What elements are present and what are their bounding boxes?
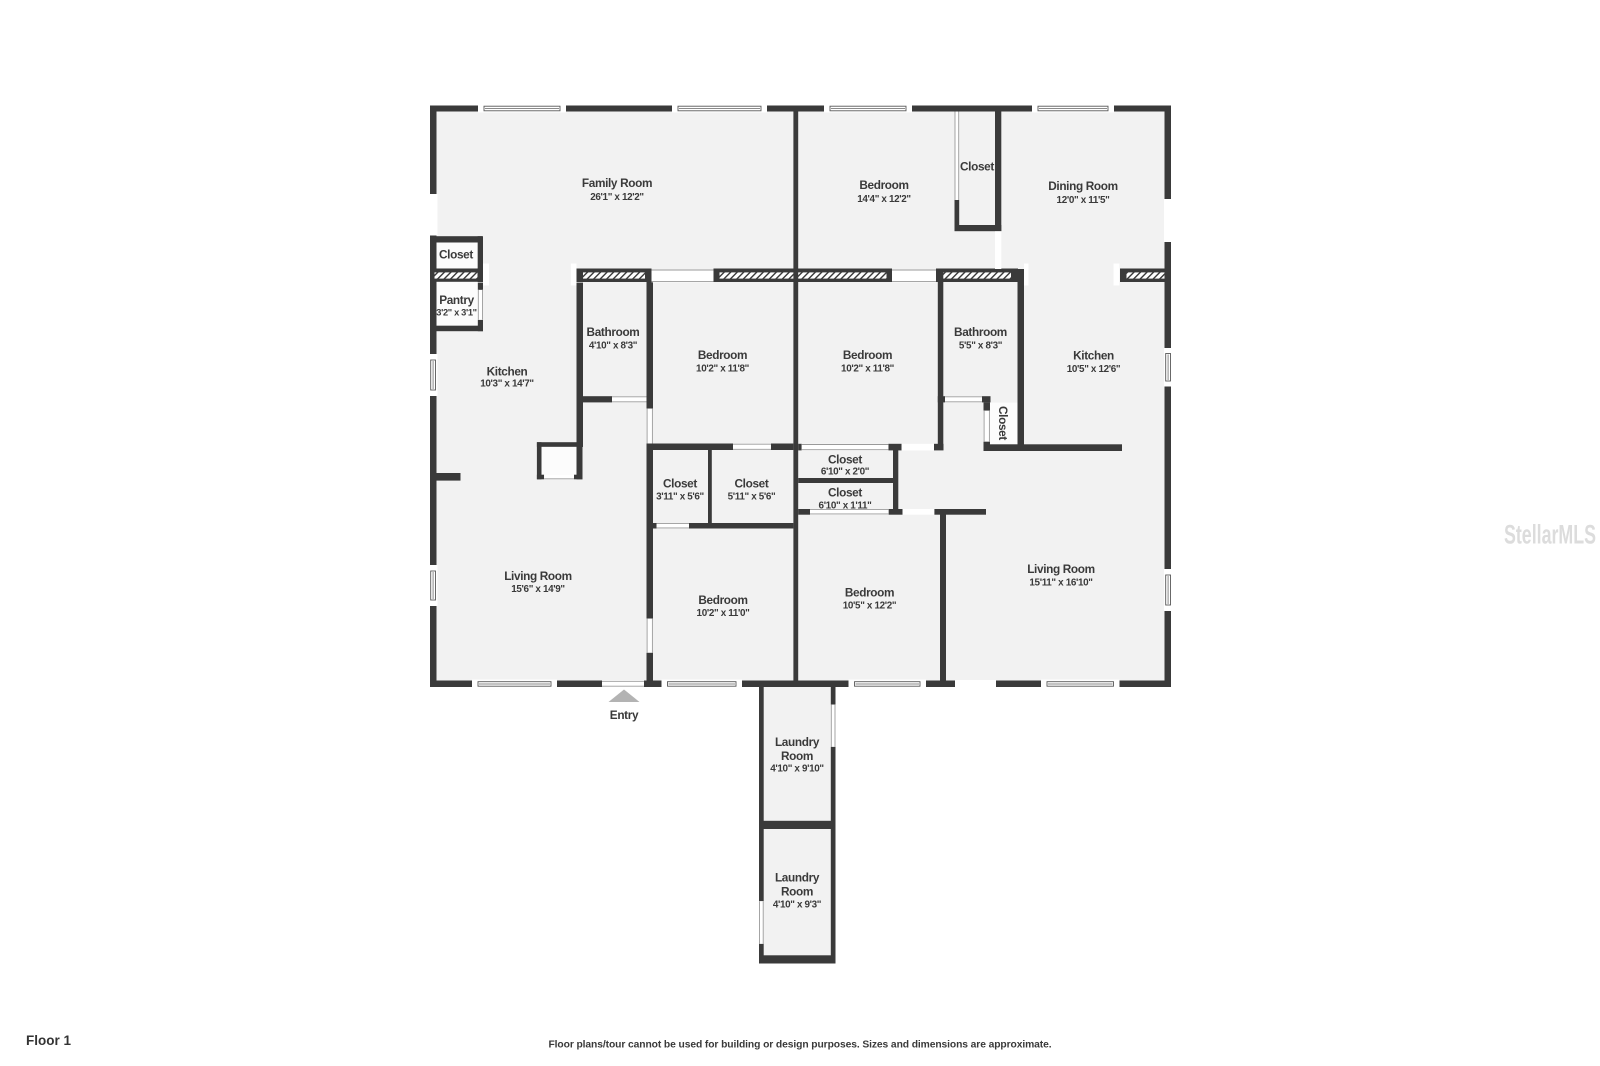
svg-text:StellarMLS: StellarMLS bbox=[1504, 520, 1596, 550]
svg-text:Living Room: Living Room bbox=[504, 569, 572, 583]
svg-text:Kitchen: Kitchen bbox=[487, 365, 528, 379]
svg-text:15'6" x 14'9": 15'6" x 14'9" bbox=[511, 584, 565, 595]
svg-text:6'10" x 1'11": 6'10" x 1'11" bbox=[819, 501, 873, 512]
svg-text:Living Room: Living Room bbox=[1027, 562, 1095, 576]
svg-text:26'1" x 12'2": 26'1" x 12'2" bbox=[590, 192, 644, 203]
svg-text:14'4" x 12'2": 14'4" x 12'2" bbox=[857, 194, 911, 205]
svg-text:Room: Room bbox=[781, 749, 813, 763]
svg-text:Kitchen: Kitchen bbox=[1073, 349, 1114, 363]
svg-text:Closet: Closet bbox=[663, 477, 697, 491]
svg-text:Closet: Closet bbox=[996, 406, 1010, 440]
svg-text:Family Room: Family Room bbox=[582, 176, 652, 190]
svg-text:10'2" x 11'0": 10'2" x 11'0" bbox=[697, 608, 751, 619]
svg-text:Pantry: Pantry bbox=[439, 293, 474, 307]
svg-text:5'11" x 5'6": 5'11" x 5'6" bbox=[728, 492, 776, 503]
svg-text:12'0" x 11'5": 12'0" x 11'5" bbox=[1057, 195, 1111, 206]
svg-text:Closet: Closet bbox=[439, 248, 473, 262]
svg-text:Dining Room: Dining Room bbox=[1048, 179, 1118, 193]
svg-text:Bathroom: Bathroom bbox=[587, 325, 640, 339]
svg-text:Laundry: Laundry bbox=[775, 735, 820, 749]
svg-text:Closet: Closet bbox=[735, 477, 769, 491]
svg-text:4'10" x 8'3": 4'10" x 8'3" bbox=[589, 341, 638, 352]
svg-text:10'5" x 12'6": 10'5" x 12'6" bbox=[1067, 364, 1121, 375]
svg-text:Closet: Closet bbox=[828, 486, 862, 500]
svg-text:Floor plans/tour cannot be use: Floor plans/tour cannot be used for buil… bbox=[548, 1040, 1051, 1051]
svg-text:Closet: Closet bbox=[828, 453, 862, 467]
svg-text:Laundry: Laundry bbox=[775, 871, 820, 885]
svg-text:4'10" x 9'10": 4'10" x 9'10" bbox=[770, 764, 824, 775]
svg-text:5'5" x 8'3": 5'5" x 8'3" bbox=[959, 341, 1003, 352]
svg-text:Bedroom: Bedroom bbox=[845, 586, 894, 600]
svg-text:10'3" x 14'7": 10'3" x 14'7" bbox=[480, 379, 534, 390]
svg-text:4'10" x 9'3": 4'10" x 9'3" bbox=[773, 900, 822, 911]
svg-text:10'2" x 11'8": 10'2" x 11'8" bbox=[841, 364, 895, 375]
svg-text:Bedroom: Bedroom bbox=[843, 348, 892, 362]
svg-text:Entry: Entry bbox=[610, 708, 639, 722]
svg-text:10'2" x 11'8": 10'2" x 11'8" bbox=[696, 364, 750, 375]
svg-text:3'11" x 5'6": 3'11" x 5'6" bbox=[656, 492, 704, 503]
svg-text:6'10" x 2'0": 6'10" x 2'0" bbox=[821, 467, 870, 478]
svg-text:Floor 1: Floor 1 bbox=[26, 1033, 71, 1048]
svg-text:10'5" x 12'2": 10'5" x 12'2" bbox=[843, 601, 897, 612]
svg-text:3'2" x 3'1": 3'2" x 3'1" bbox=[436, 308, 476, 318]
svg-text:Room: Room bbox=[781, 885, 813, 899]
svg-text:Closet: Closet bbox=[960, 160, 994, 174]
svg-text:Bathroom: Bathroom bbox=[954, 325, 1007, 339]
svg-text:Bedroom: Bedroom bbox=[698, 348, 747, 362]
svg-text:15'11" x 16'10": 15'11" x 16'10" bbox=[1029, 578, 1093, 589]
svg-text:Bedroom: Bedroom bbox=[859, 178, 908, 192]
svg-text:Bedroom: Bedroom bbox=[698, 593, 747, 607]
